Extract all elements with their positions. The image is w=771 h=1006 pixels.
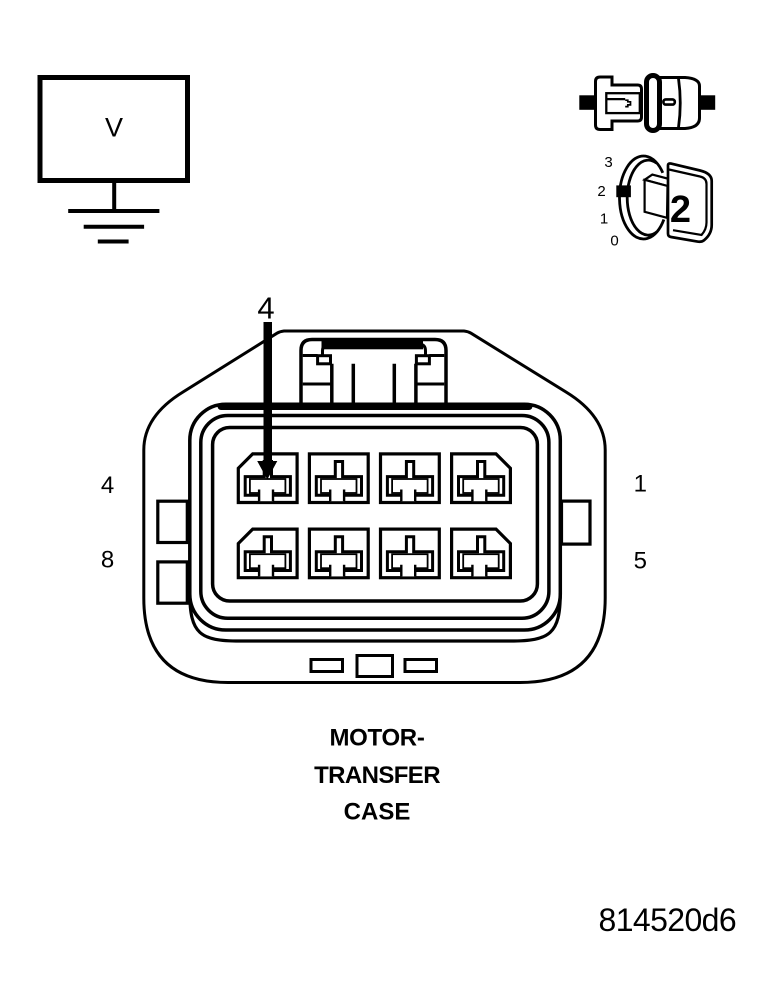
svg-text:2: 2 <box>670 189 691 231</box>
svg-text:8: 8 <box>101 547 114 574</box>
svg-text:1: 1 <box>634 471 647 498</box>
svg-text:5: 5 <box>634 548 647 575</box>
svg-text:V: V <box>105 113 123 143</box>
svg-text:CASE: CASE <box>344 798 411 825</box>
svg-text:4: 4 <box>101 472 114 499</box>
svg-text:0: 0 <box>610 232 618 249</box>
svg-text:814520d6: 814520d6 <box>599 902 737 938</box>
svg-text:4: 4 <box>257 291 274 326</box>
svg-text:1: 1 <box>600 210 608 227</box>
svg-text:2: 2 <box>597 183 605 200</box>
svg-text:MOTOR-: MOTOR- <box>329 724 424 751</box>
svg-text:TRANSFER: TRANSFER <box>314 762 440 789</box>
svg-text:3: 3 <box>604 154 612 171</box>
